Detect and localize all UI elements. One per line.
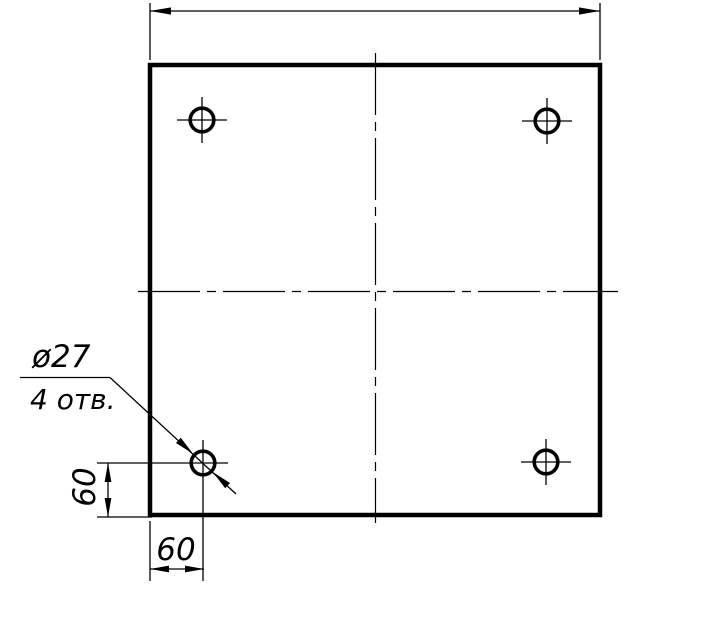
- dimension-value: 60: [156, 532, 195, 568]
- drawing-canvas: 60 60 ø27 4 отв.: [0, 0, 713, 631]
- hole-top-right: [522, 98, 572, 144]
- callout-diameter-text: ø27: [31, 339, 91, 375]
- dimension-value: 60: [67, 467, 103, 506]
- dimension-top-overall: [150, 3, 600, 60]
- arrowhead-up: [105, 463, 112, 482]
- arrowhead-right: [579, 7, 600, 14]
- arrowhead-down: [105, 498, 112, 517]
- hole-bottom-right: [521, 439, 571, 485]
- arrowhead-left: [150, 7, 171, 14]
- hole-top-left: [177, 97, 227, 143]
- dimension-left-60: 60: [67, 463, 152, 517]
- plate-drawing: 60 60 ø27 4 отв.: [0, 0, 713, 631]
- dimension-bottom-60: 60: [150, 521, 204, 581]
- callout-count-text: 4 отв.: [30, 383, 116, 416]
